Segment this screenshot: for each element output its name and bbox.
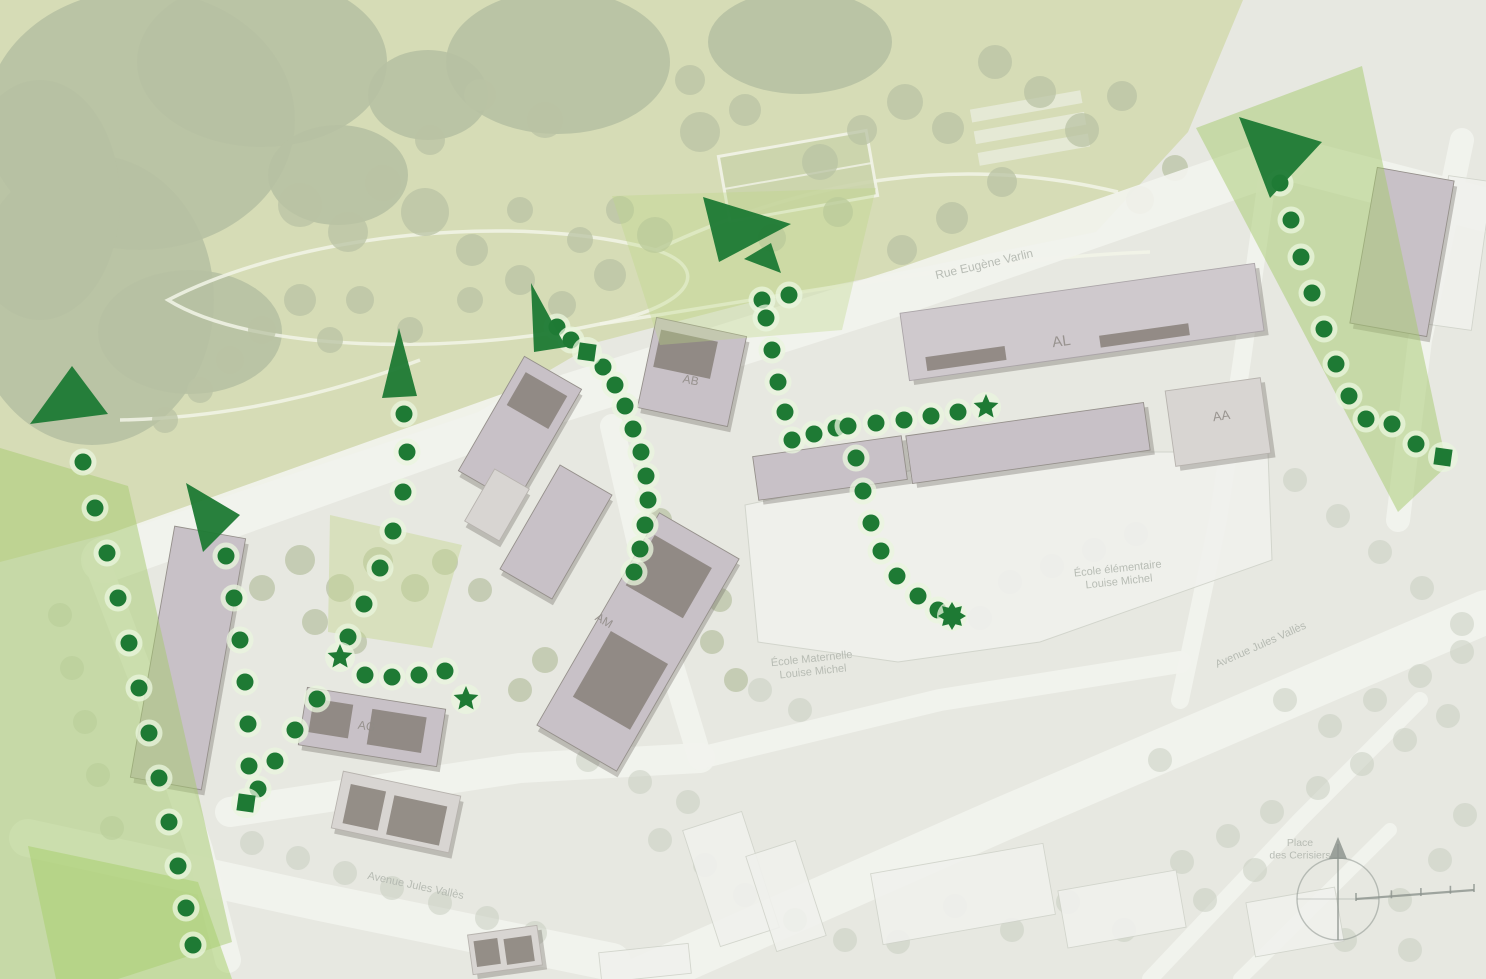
street-tree	[1368, 540, 1392, 564]
route-dot	[910, 588, 927, 605]
street-tree	[1243, 858, 1267, 882]
tree	[152, 407, 178, 433]
map-label-text: AG	[357, 718, 376, 735]
route-dot	[141, 725, 158, 742]
tree	[847, 115, 877, 145]
route-dot	[777, 404, 794, 421]
map-label-text: Place	[1287, 837, 1313, 849]
street-tree	[788, 698, 812, 722]
street-tree	[1193, 888, 1217, 912]
route-dot	[1341, 388, 1358, 405]
route-dot	[232, 632, 249, 649]
street-tree	[1410, 576, 1434, 600]
street-tree	[1260, 800, 1284, 824]
tree	[675, 65, 705, 95]
route-dot	[384, 669, 401, 686]
route-dot	[781, 287, 798, 304]
map-label-text: AA	[1212, 407, 1232, 424]
tree	[346, 286, 374, 314]
street-tree	[1306, 776, 1330, 800]
route-dot	[1283, 212, 1300, 229]
street-tree	[475, 906, 499, 930]
street-tree	[628, 770, 652, 794]
tree	[978, 45, 1012, 79]
route-dot	[868, 415, 885, 432]
tree	[365, 165, 401, 201]
tree	[464, 79, 496, 111]
route-dot	[395, 484, 412, 501]
site-plan-map: Rue Eugène VarlinAvenue Jules VallèsAven…	[0, 0, 1486, 979]
tree	[567, 227, 593, 253]
route-dot	[950, 404, 967, 421]
route-dot	[617, 398, 634, 415]
route-dot	[161, 814, 178, 831]
tree	[187, 377, 213, 403]
route-dot	[131, 680, 148, 697]
route-dot	[218, 548, 235, 565]
tree	[505, 265, 535, 295]
square-marker	[1433, 447, 1452, 466]
street-tree	[676, 790, 700, 814]
street-tree	[748, 678, 772, 702]
route-dot	[770, 374, 787, 391]
square-marker	[577, 342, 596, 361]
tree	[1065, 113, 1099, 147]
street-tree	[1398, 938, 1422, 962]
tree	[456, 234, 488, 266]
route-dot	[632, 541, 649, 558]
route-dot	[764, 342, 781, 359]
tree	[680, 112, 720, 152]
street-tree	[1450, 640, 1474, 664]
tree	[415, 125, 445, 155]
street-tree	[1450, 612, 1474, 636]
route-dot	[640, 492, 657, 509]
street-tree	[1326, 504, 1350, 528]
route-dot	[638, 468, 655, 485]
building-code-label: AL	[1051, 332, 1072, 351]
tree	[508, 678, 532, 702]
building-roof	[503, 935, 534, 965]
route-dot	[625, 421, 642, 438]
route-dot	[889, 568, 906, 585]
route-dot	[75, 454, 92, 471]
route-dot	[855, 483, 872, 500]
building-code-label: AG	[357, 718, 376, 735]
route-dot	[633, 444, 650, 461]
tree	[936, 202, 968, 234]
tree	[248, 316, 276, 344]
street-tree	[1436, 704, 1460, 728]
route-dot	[840, 418, 857, 435]
street-tree	[1216, 824, 1240, 848]
building	[1165, 377, 1275, 471]
route-dot	[87, 500, 104, 517]
tree	[724, 668, 748, 692]
route-dot	[923, 408, 940, 425]
map-label-text: AL	[1051, 332, 1072, 351]
tree	[700, 630, 724, 654]
route-dot	[607, 377, 624, 394]
route-dot	[385, 523, 402, 540]
street-tree	[286, 846, 310, 870]
street-tree	[833, 928, 857, 952]
route-dot	[626, 564, 643, 581]
route-dot	[399, 444, 416, 461]
tree	[401, 188, 449, 236]
route-dot	[110, 590, 127, 607]
tree	[887, 235, 917, 265]
tree	[216, 346, 244, 374]
tree	[802, 144, 838, 180]
tree	[1107, 81, 1137, 111]
building-code-label: AA	[1212, 407, 1232, 424]
route-dot	[863, 515, 880, 532]
route-dot	[287, 722, 304, 739]
route-dot	[1328, 356, 1345, 373]
route-dot	[873, 543, 890, 560]
building-roof	[473, 938, 500, 967]
route-dot	[241, 758, 258, 775]
street-tree	[1408, 664, 1432, 688]
tree	[317, 327, 343, 353]
tree	[249, 575, 275, 601]
route-dot	[170, 858, 187, 875]
street-tree	[1273, 688, 1297, 712]
route-dot	[1384, 416, 1401, 433]
tree	[532, 647, 558, 673]
street-tree	[1148, 748, 1172, 772]
route-dot	[1304, 285, 1321, 302]
street-tree	[1318, 714, 1342, 738]
tree	[468, 578, 492, 602]
tree	[278, 183, 322, 227]
route-dot	[1408, 436, 1425, 453]
route-dot	[237, 674, 254, 691]
map-label-text: des Cerisiers	[1269, 850, 1330, 862]
street-tree	[1283, 468, 1307, 492]
route-dot	[437, 663, 454, 680]
route-dot	[784, 432, 801, 449]
route-dot	[758, 310, 775, 327]
route-dot	[99, 545, 116, 562]
route-dot	[357, 667, 374, 684]
street-tree	[1428, 848, 1452, 872]
route-dot	[1293, 249, 1310, 266]
route-dot	[267, 753, 284, 770]
route-dot	[356, 596, 373, 613]
route-dot	[240, 716, 257, 733]
tree	[594, 259, 626, 291]
route-dot	[185, 937, 202, 954]
street-tree	[1350, 752, 1374, 776]
tree	[328, 212, 368, 252]
gear-marker	[938, 602, 966, 630]
route-dot	[896, 412, 913, 429]
tree	[285, 545, 315, 575]
tree	[987, 167, 1017, 197]
masterplan-screenshot: Rue Eugène VarlinAvenue Jules VallèsAven…	[0, 0, 1486, 979]
route-dot	[1316, 321, 1333, 338]
tree	[457, 287, 483, 313]
route-dot	[396, 406, 413, 423]
tree	[1024, 76, 1056, 108]
tree	[302, 609, 328, 635]
street-tree	[1393, 728, 1417, 752]
tree	[527, 102, 563, 138]
tree	[284, 284, 316, 316]
square-marker	[236, 793, 255, 812]
tree	[729, 94, 761, 126]
street-tree	[1453, 803, 1477, 827]
route-dot	[1358, 411, 1375, 428]
route-dot	[309, 691, 326, 708]
street-tree	[648, 828, 672, 852]
tree	[932, 112, 964, 144]
street-tree	[1363, 688, 1387, 712]
route-dot	[121, 635, 138, 652]
route-dot	[637, 517, 654, 534]
route-dot	[848, 450, 865, 467]
street-tree	[333, 861, 357, 885]
route-dot	[178, 900, 195, 917]
route-dot	[151, 770, 168, 787]
route-dot	[372, 560, 389, 577]
route-dot	[226, 590, 243, 607]
street-tree	[240, 831, 264, 855]
tree	[887, 84, 923, 120]
route-dot	[411, 667, 428, 684]
route-dot	[806, 426, 823, 443]
tree	[507, 197, 533, 223]
